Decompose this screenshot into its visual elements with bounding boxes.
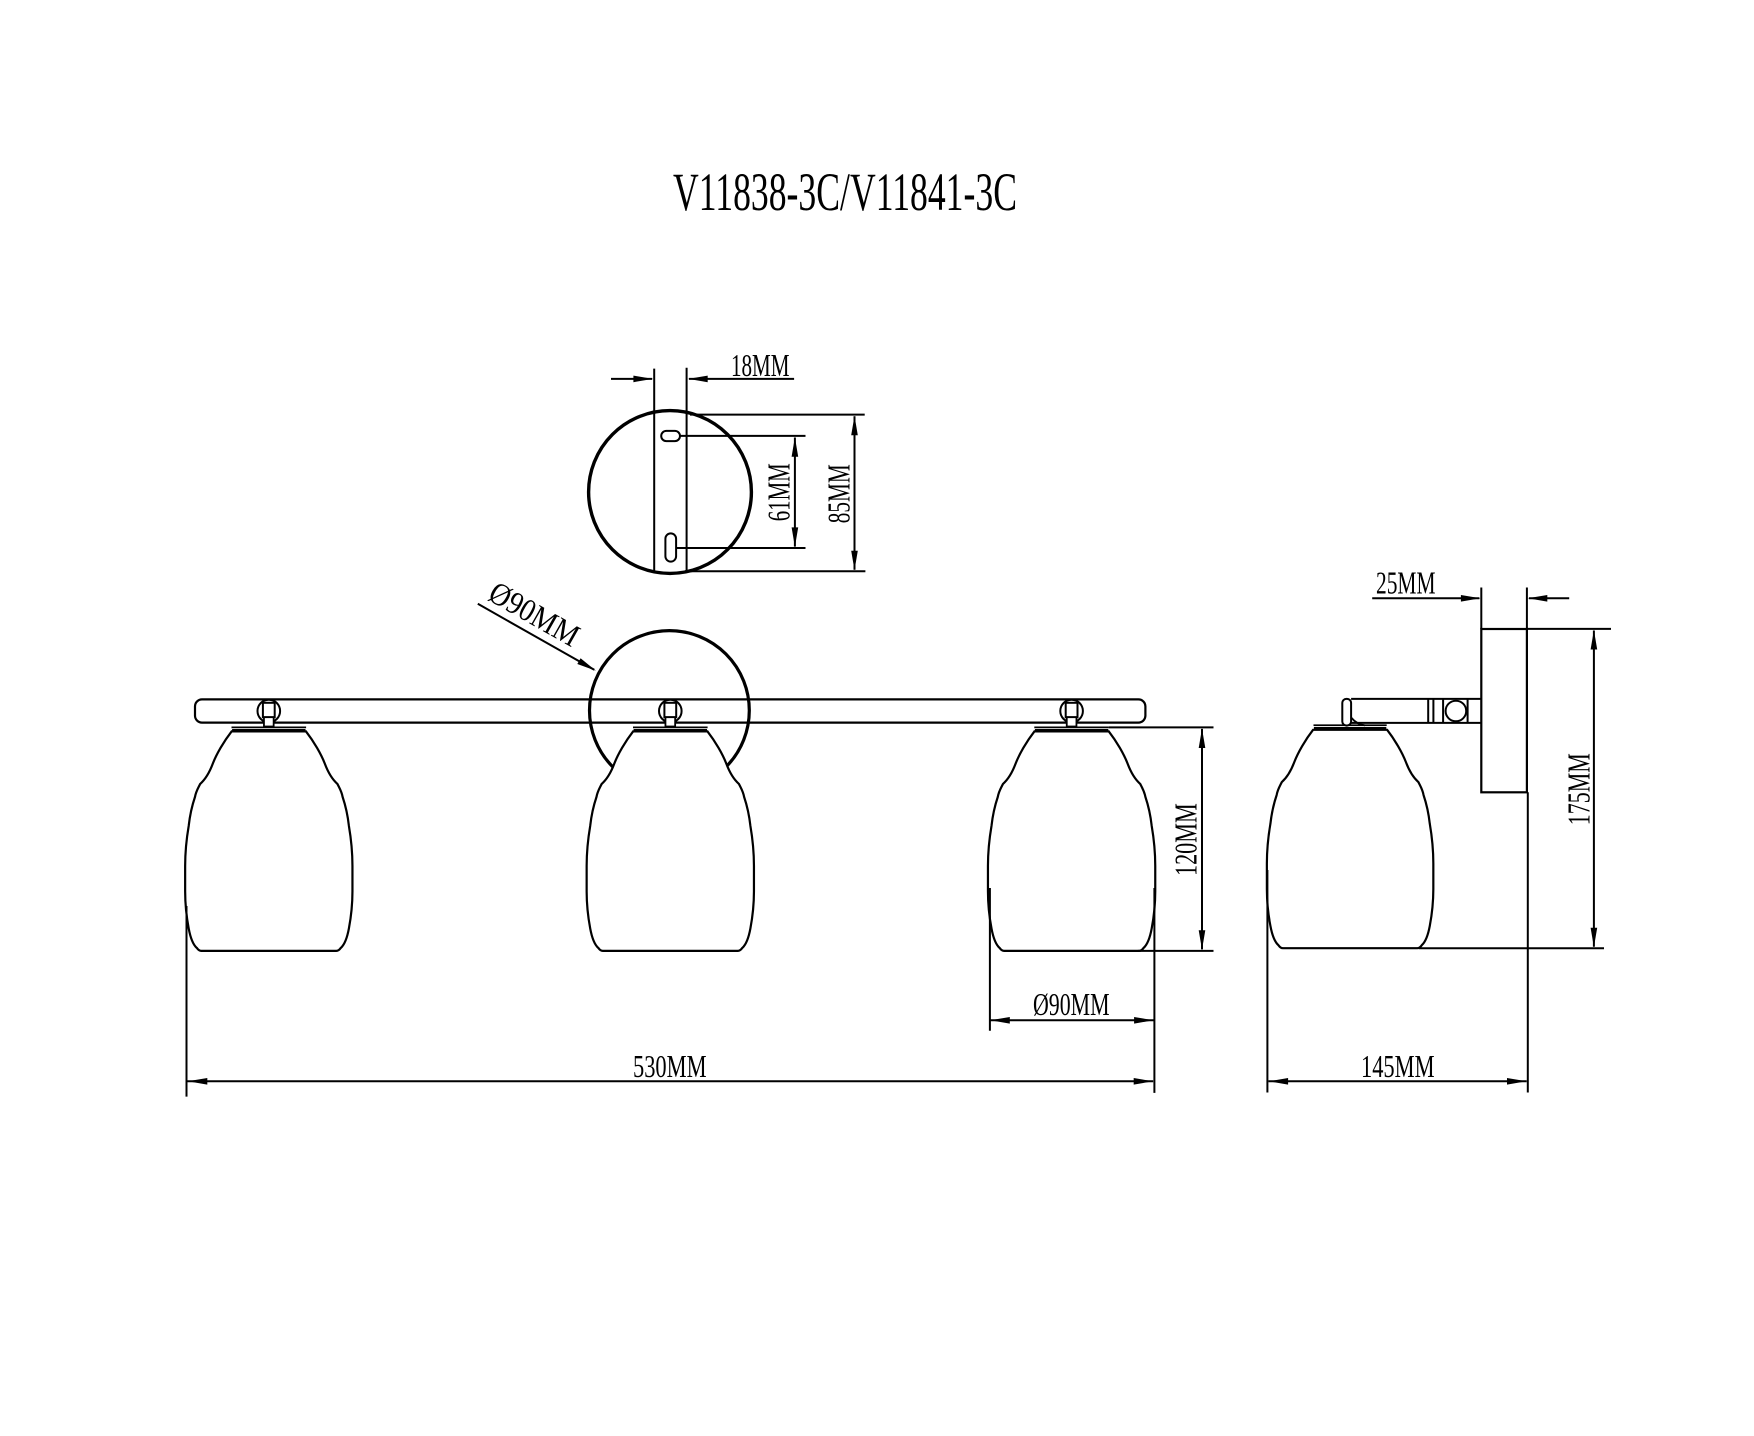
svg-text:V11838-3C/V11841-3C: V11838-3C/V11841-3C (673, 162, 1017, 222)
svg-text:Ø90MM: Ø90MM (1033, 986, 1110, 1022)
svg-text:61MM: 61MM (761, 463, 797, 521)
svg-text:530MM: 530MM (633, 1048, 707, 1084)
svg-text:18MM: 18MM (731, 347, 790, 383)
svg-text:145MM: 145MM (1361, 1048, 1435, 1084)
svg-text:25MM: 25MM (1376, 565, 1436, 601)
svg-text:85MM: 85MM (821, 464, 857, 523)
svg-text:120MM: 120MM (1167, 803, 1203, 876)
svg-text:175MM: 175MM (1561, 753, 1597, 825)
